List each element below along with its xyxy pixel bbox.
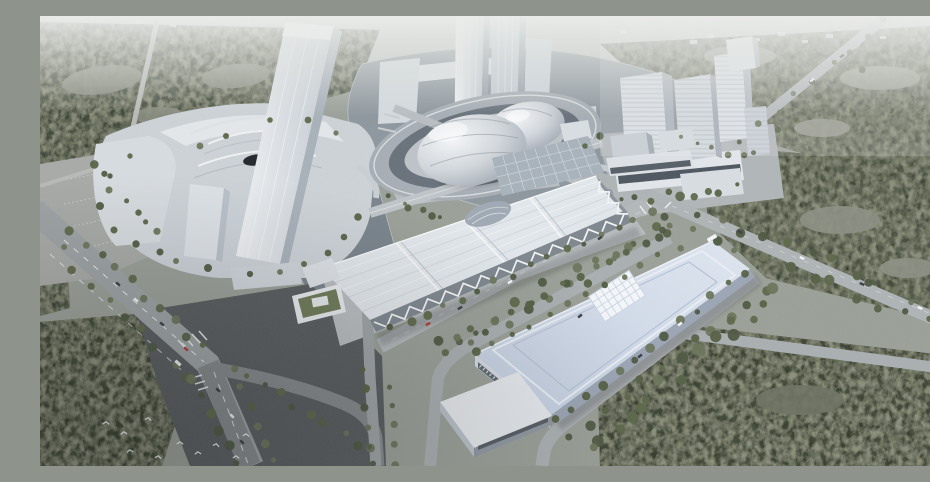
architectural-rendering: Hazy aerial rendering of a civic and exh… <box>40 16 930 466</box>
film-grain <box>40 16 930 466</box>
